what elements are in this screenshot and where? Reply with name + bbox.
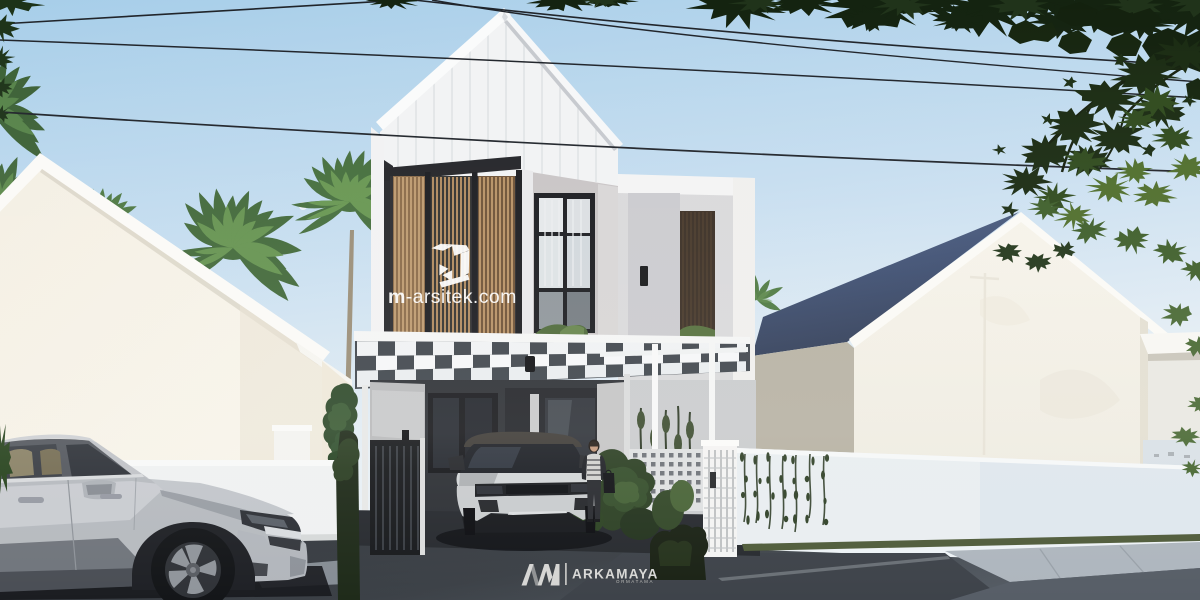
svg-text:ORMATAMA: ORMATAMA — [616, 579, 654, 584]
